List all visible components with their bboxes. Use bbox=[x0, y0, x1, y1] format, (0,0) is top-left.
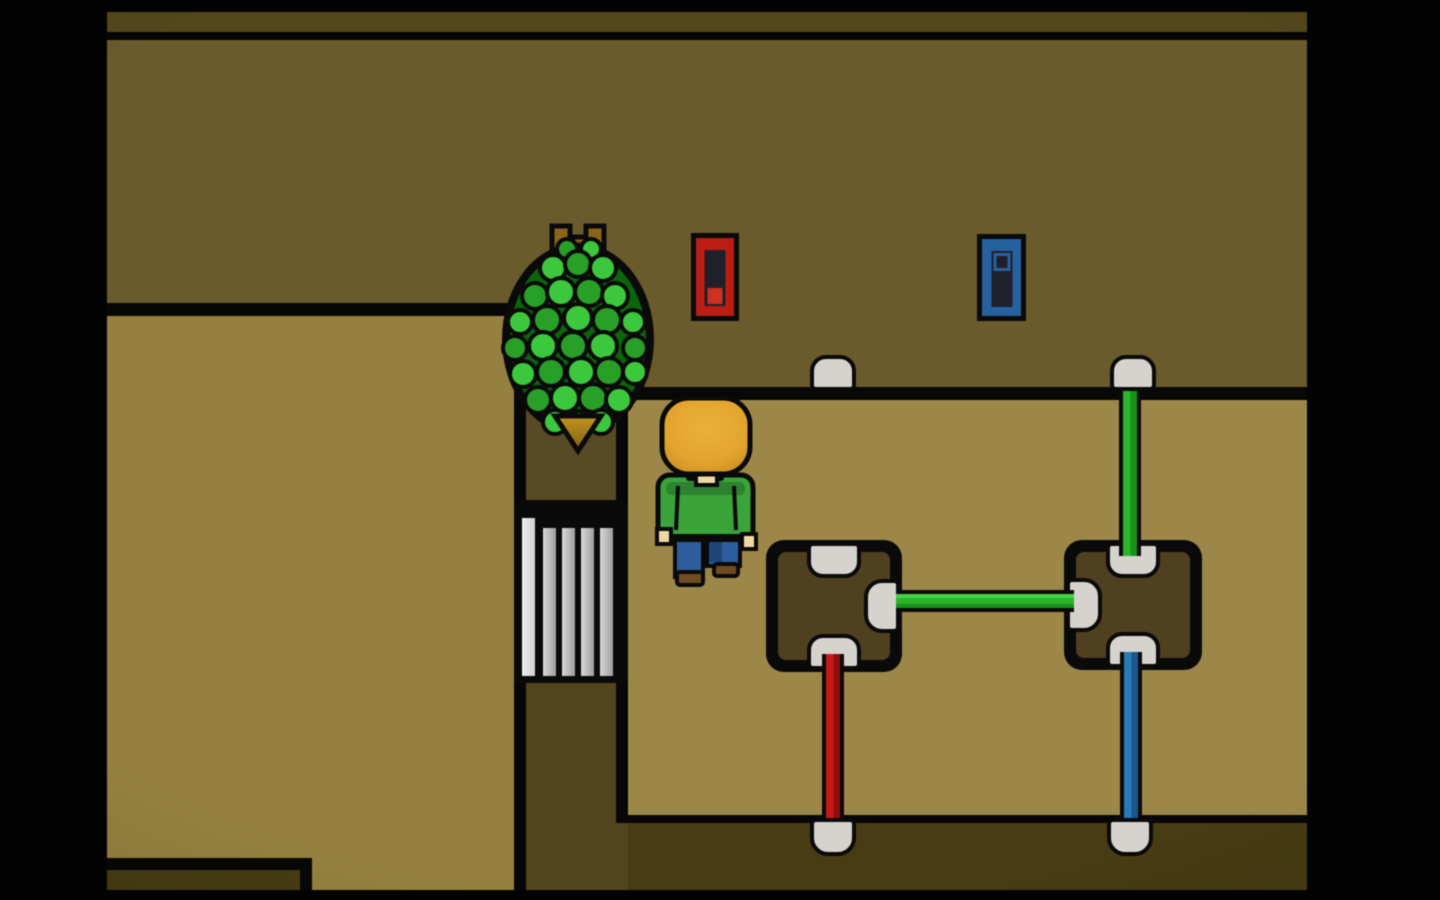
wall-socket-right bbox=[1110, 355, 1156, 391]
player-head bbox=[662, 398, 750, 474]
player-hand-left bbox=[657, 529, 671, 544]
ledge-step bbox=[300, 858, 312, 890]
floor-left bbox=[107, 316, 514, 890]
wall-socket-left bbox=[810, 355, 856, 391]
lower-socket-right bbox=[1107, 818, 1153, 856]
grate-bar bbox=[581, 528, 594, 676]
lever-blue[interactable] bbox=[977, 234, 1026, 321]
ledge-edge bbox=[107, 858, 312, 870]
junction-box-right[interactable] bbox=[1064, 540, 1202, 670]
lever-slot bbox=[991, 251, 1012, 307]
wall-floor-edge-left bbox=[107, 303, 516, 316]
player-shoe-left bbox=[677, 572, 703, 585]
grate-bar bbox=[600, 528, 613, 676]
lower-wall bbox=[628, 823, 1307, 890]
pipe-green-vertical bbox=[1119, 378, 1141, 556]
pipe-port-top bbox=[807, 542, 861, 578]
ladder-grate bbox=[514, 500, 628, 683]
lower-socket-left bbox=[810, 818, 856, 856]
upper-wall-cap bbox=[107, 12, 1307, 40]
pipe-red-vertical bbox=[822, 654, 844, 836]
player-character bbox=[652, 390, 758, 600]
pipe-green-horizontal bbox=[896, 590, 1074, 612]
lever-handle[interactable] bbox=[993, 253, 1010, 271]
lever-handle[interactable] bbox=[708, 288, 723, 304]
junction-box-left[interactable] bbox=[766, 540, 902, 672]
lower-wall-edge bbox=[628, 815, 1307, 823]
player-hand-right bbox=[742, 534, 756, 549]
grate-bar bbox=[543, 528, 556, 676]
lever-slot bbox=[705, 250, 726, 306]
tree bbox=[493, 218, 665, 462]
grate-bar bbox=[522, 518, 535, 676]
trunk-column-bridge bbox=[616, 823, 628, 890]
ledge bbox=[107, 870, 300, 890]
grate-bar bbox=[562, 528, 575, 676]
pipe-blue-vertical bbox=[1120, 652, 1142, 836]
pipe-port-right bbox=[864, 579, 900, 633]
player-shoe-right bbox=[714, 564, 738, 576]
lever-red[interactable] bbox=[691, 233, 739, 321]
trunk-column-lower bbox=[526, 683, 616, 890]
game-viewport bbox=[0, 0, 1440, 900]
